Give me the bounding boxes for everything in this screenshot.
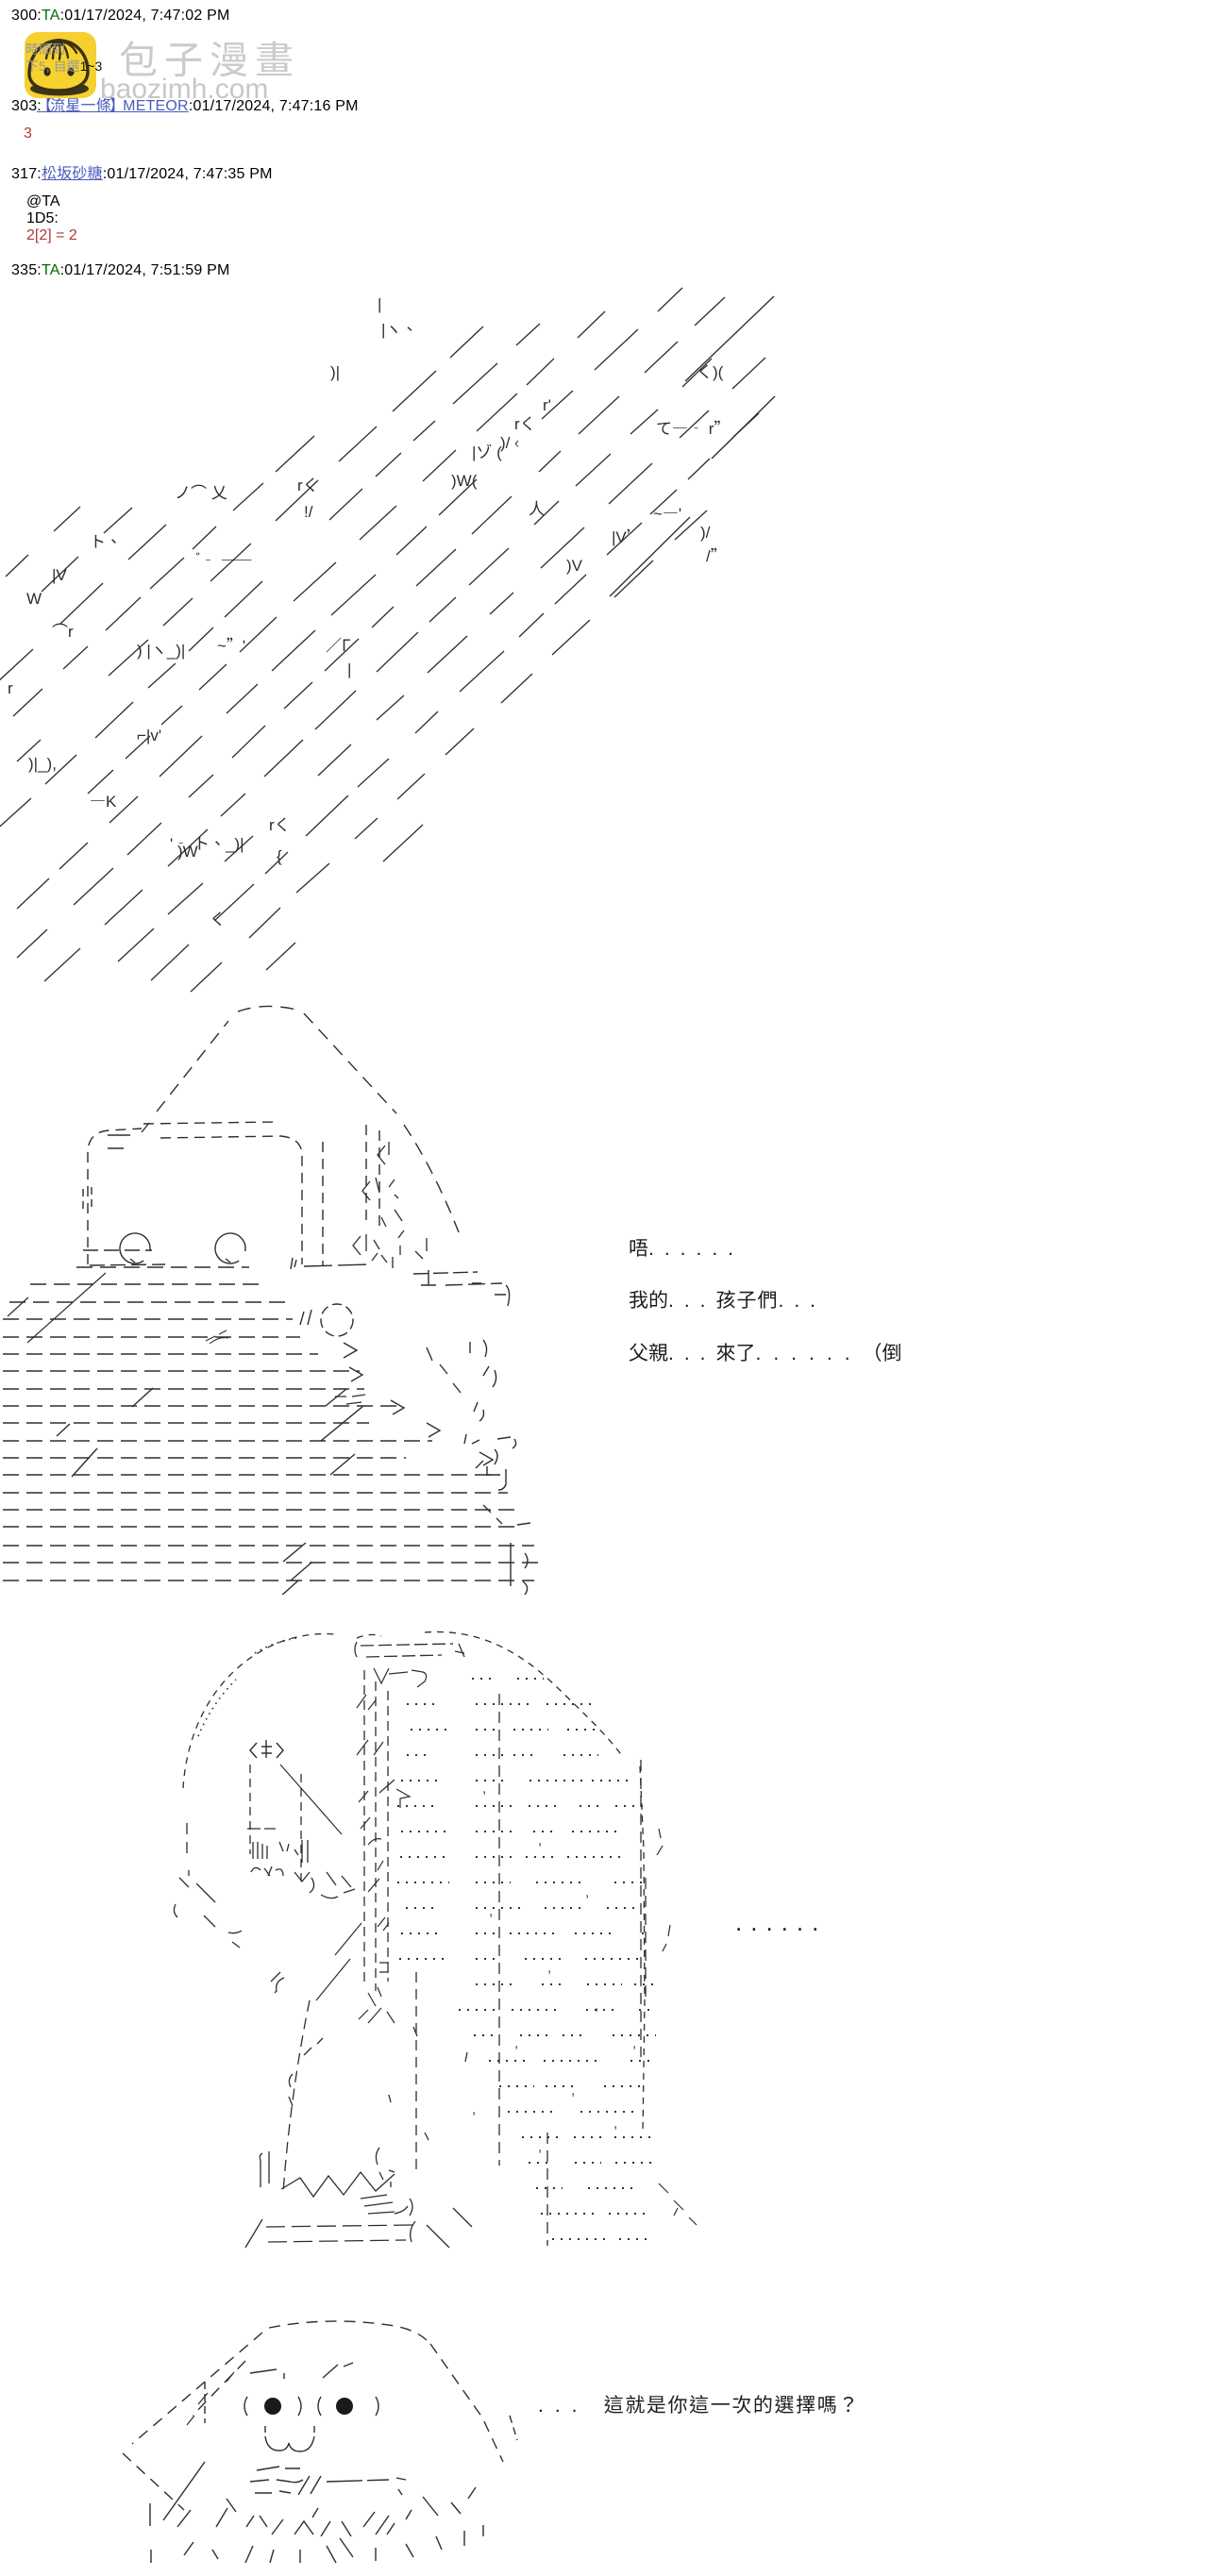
- svg-text:)/: )/: [700, 519, 711, 543]
- svg-text:,: ,: [538, 2139, 542, 2155]
- svg-text:人: 人: [529, 495, 545, 519]
- svg-text:く: く: [210, 906, 226, 929]
- svg-text:,: ,: [472, 2101, 476, 2117]
- svg-text:|: |: [347, 656, 351, 679]
- svg-text:ト、: ト、: [90, 528, 122, 552]
- svg-text:|ヽ、: |ヽ、: [381, 316, 417, 340]
- svg-text:) |ヽ_)|: ) |ヽ_)|: [137, 637, 185, 661]
- svg-text:,: ,: [489, 1903, 493, 1919]
- svg-text:)V: )V: [566, 552, 583, 576]
- svg-text:|V: |V: [52, 561, 67, 585]
- svg-text:⌐|v': ⌐|v': [137, 722, 161, 745]
- svg-text:,: ,: [538, 1832, 542, 1848]
- svg-text:!/: !/: [304, 498, 313, 522]
- svg-text:rく: rく: [514, 410, 536, 434]
- svg-text:|V’: |V’: [612, 524, 643, 547]
- svg-text:／Γ: ／Γ: [326, 632, 350, 656]
- svg-text:rく: rく: [269, 811, 291, 835]
- svg-text:rく: rく: [297, 472, 319, 495]
- svg-text:―K: ―K: [90, 788, 117, 811]
- svg-text:~゙‐ ――: ~゙‐ ――: [184, 547, 253, 571]
- svg-text:く)(: く)(: [697, 359, 724, 382]
- svg-text:)|: )|: [330, 359, 340, 382]
- svg-text:)W(: )W(: [451, 467, 478, 491]
- svg-text:,: ,: [585, 1884, 589, 1900]
- svg-text:~―': ~―': [653, 500, 681, 524]
- svg-text:,: ,: [482, 1781, 486, 1797]
- svg-text:,: ,: [547, 1960, 551, 1976]
- svg-text:,: ,: [632, 2035, 636, 2051]
- svg-text:r: r: [8, 675, 13, 698]
- svg-text:て―‐ r”: て―‐ r”: [656, 415, 730, 439]
- svg-text:r': r': [543, 392, 551, 415]
- svg-text:~”': ~”': [217, 632, 245, 656]
- svg-text:/”: /”: [706, 543, 727, 566]
- svg-text:,: ,: [514, 2035, 518, 2051]
- svg-text:|ゾ (: |ゾ (: [472, 439, 502, 462]
- svg-text:)|_),: )|_),: [28, 750, 57, 774]
- svg-text:|: |: [378, 291, 381, 314]
- svg-text:,: ,: [613, 2116, 617, 2132]
- svg-text:,: ,: [595, 1998, 598, 2014]
- svg-text:,: ,: [571, 2083, 575, 2099]
- svg-text:ノ⌒ 乂: ノ⌒ 乂: [175, 479, 227, 503]
- svg-text:{: {: [277, 843, 282, 866]
- svg-text:W: W: [26, 585, 42, 609]
- svg-text:⌒r: ⌒r: [52, 618, 74, 642]
- svg-text:)W: )W: [177, 838, 198, 861]
